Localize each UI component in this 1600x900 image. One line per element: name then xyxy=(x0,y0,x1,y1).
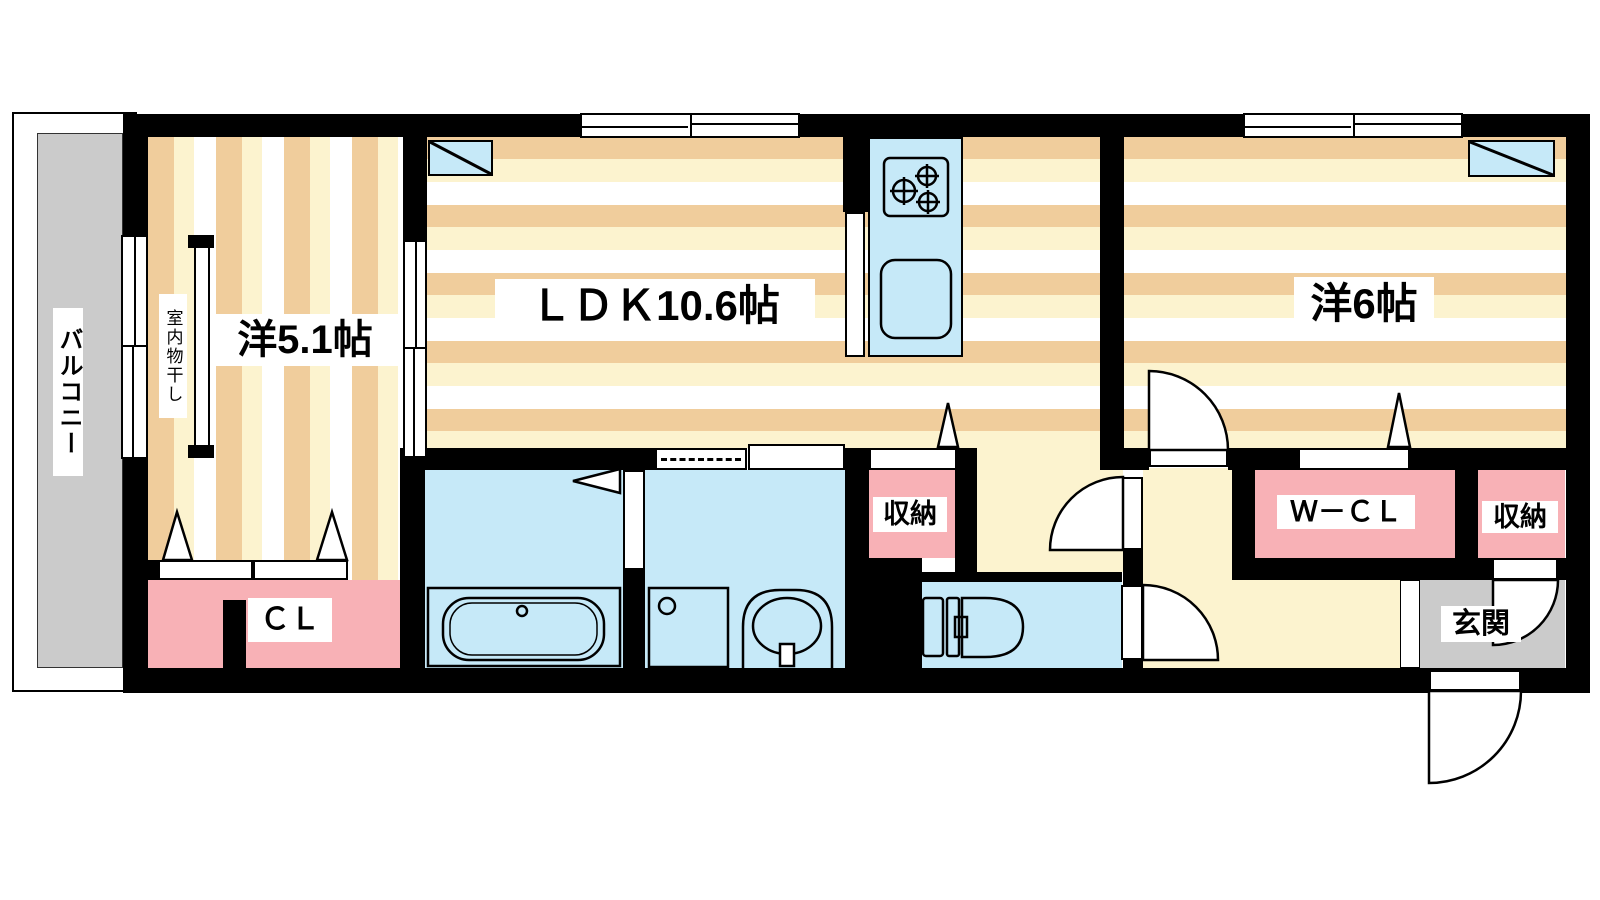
closet-door-sash xyxy=(158,560,253,580)
door-swing-front-door xyxy=(1429,691,1521,783)
storage-center-sliding-door xyxy=(869,448,957,470)
window-top-ldk xyxy=(580,113,800,138)
bathroom-door-leaf xyxy=(623,470,645,570)
hallway-floor-lower xyxy=(1232,573,1400,668)
entrance-label: 玄関 xyxy=(1441,606,1521,642)
wall xyxy=(843,135,868,212)
ac-unit-ldk xyxy=(428,140,493,176)
window-top-room6 xyxy=(1243,113,1463,138)
washroom-floor xyxy=(645,470,845,668)
hallway-floor-entrance xyxy=(1143,468,1232,668)
closet-divider-wall xyxy=(223,600,246,668)
floor-plan: バルコニー 室内物干し 洋5.1帖 ＬＤＫ10.6帖 洋6帖 ＣＬ 収納 Ｗ－Ｃ… xyxy=(0,0,1600,900)
entrance-step xyxy=(1400,580,1420,668)
laundry-pole xyxy=(194,246,210,447)
window-left-balcony xyxy=(121,235,148,459)
west-room-small-label: 洋5.1帖 xyxy=(210,314,400,366)
wall xyxy=(845,448,869,470)
storage-entrance-label: 収納 xyxy=(1482,501,1558,533)
walk-in-closet-label: Ｗ－ＣＬ xyxy=(1277,495,1415,529)
washroom-sliding-door xyxy=(748,444,845,470)
closet-label: ＣＬ xyxy=(248,598,332,642)
wall xyxy=(1410,448,1566,470)
wall xyxy=(123,668,1590,693)
wall xyxy=(1566,137,1590,668)
ldk-label: ＬＤＫ10.6帖 xyxy=(495,279,815,333)
laundry-pole-bottom-cap xyxy=(188,445,214,458)
kitchen-counter xyxy=(868,137,963,357)
wall xyxy=(1228,448,1298,470)
wall xyxy=(1558,558,1566,580)
wall xyxy=(1232,470,1255,580)
west-room-large-label: 洋6帖 xyxy=(1294,277,1434,330)
wall xyxy=(1124,448,1149,470)
wall xyxy=(1255,558,1492,580)
storage-entrance-door-leaf xyxy=(1492,558,1558,580)
sliding-door-room-divider xyxy=(403,240,427,458)
ac-unit-room6 xyxy=(1468,140,1555,177)
wall xyxy=(845,558,922,668)
wall xyxy=(400,448,655,470)
wall xyxy=(1123,550,1143,586)
room6-door-leaf xyxy=(1149,445,1228,467)
wall xyxy=(1100,137,1124,470)
wall xyxy=(403,137,427,240)
storage-center-label: 収納 xyxy=(873,497,947,532)
closet-door-sash xyxy=(253,560,348,580)
hall-door-leaf xyxy=(1121,477,1143,550)
wall xyxy=(1455,470,1478,558)
balcony-label: バルコニー xyxy=(53,308,83,476)
kitchen-counter-end-panel xyxy=(845,212,865,357)
toilet-door-leaf xyxy=(1121,585,1143,660)
toilet-floor xyxy=(922,582,1122,668)
wall xyxy=(922,572,1122,582)
wall xyxy=(845,470,869,558)
wcl-sliding-door xyxy=(1298,448,1410,470)
indoor-drying-label: 室内物干し xyxy=(159,294,187,418)
wall xyxy=(147,560,158,580)
bathroom-floor xyxy=(425,470,623,668)
front-door-leaf xyxy=(1429,670,1521,691)
wall xyxy=(400,458,425,668)
wall xyxy=(955,448,977,582)
closet-cl-sliding-doors xyxy=(158,560,348,580)
washroom-counter-dashed xyxy=(655,448,747,470)
